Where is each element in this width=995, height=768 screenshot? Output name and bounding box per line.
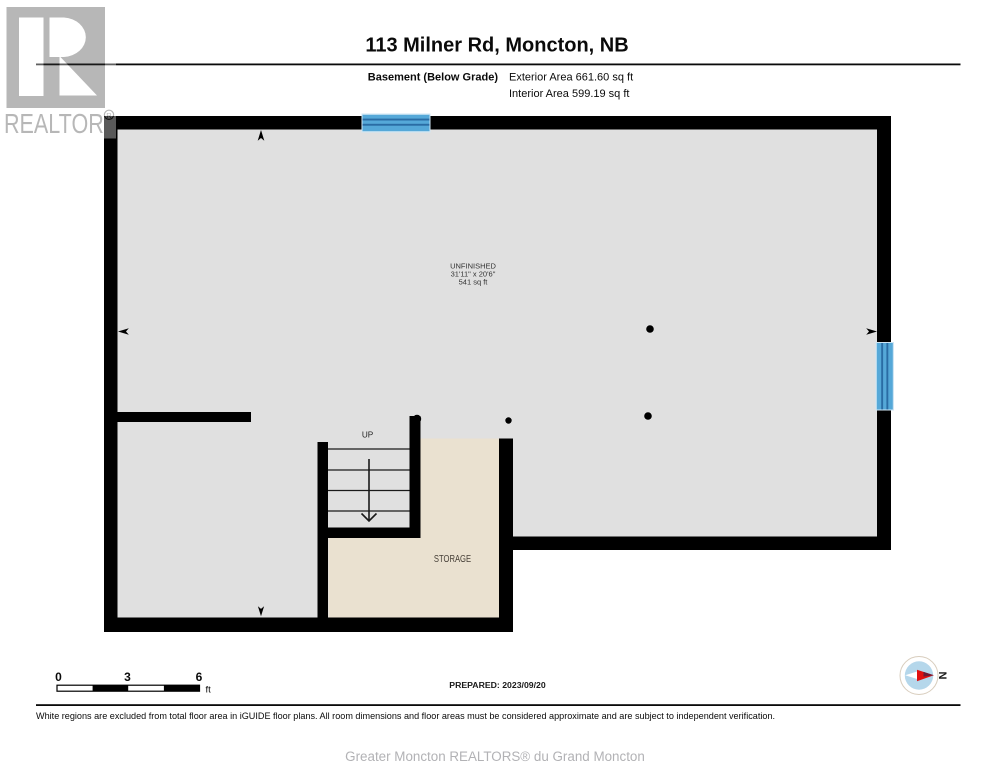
svg-text:0: 0 [55, 670, 62, 684]
svg-text:R: R [106, 111, 112, 120]
svg-text:PREPARED: 2023/09/20: PREPARED: 2023/09/20 [449, 680, 546, 690]
svg-text:113 Milner Rd, Moncton, NB: 113 Milner Rd, Moncton, NB [365, 35, 628, 57]
svg-text:Interior Area 599.19 sq ft: Interior Area 599.19 sq ft [509, 88, 629, 100]
svg-text:Exterior Area 661.60 sq ft: Exterior Area 661.60 sq ft [509, 72, 633, 84]
svg-text:White regions are excluded fro: White regions are excluded from total fl… [36, 711, 775, 721]
svg-text:Greater Moncton REALTORS® du G: Greater Moncton REALTORS® du Grand Monct… [345, 749, 645, 764]
svg-text:N: N [936, 672, 948, 680]
svg-text:Basement (Below Grade): Basement (Below Grade) [368, 72, 499, 84]
svg-text:UP: UP [362, 431, 374, 440]
svg-text:541 sq ft: 541 sq ft [459, 278, 489, 287]
svg-text:3: 3 [124, 670, 131, 684]
svg-text:REALTOR: REALTOR [4, 108, 104, 139]
svg-text:ft: ft [206, 685, 212, 696]
svg-text:6: 6 [196, 670, 203, 684]
svg-text:STORAGE: STORAGE [434, 553, 471, 564]
